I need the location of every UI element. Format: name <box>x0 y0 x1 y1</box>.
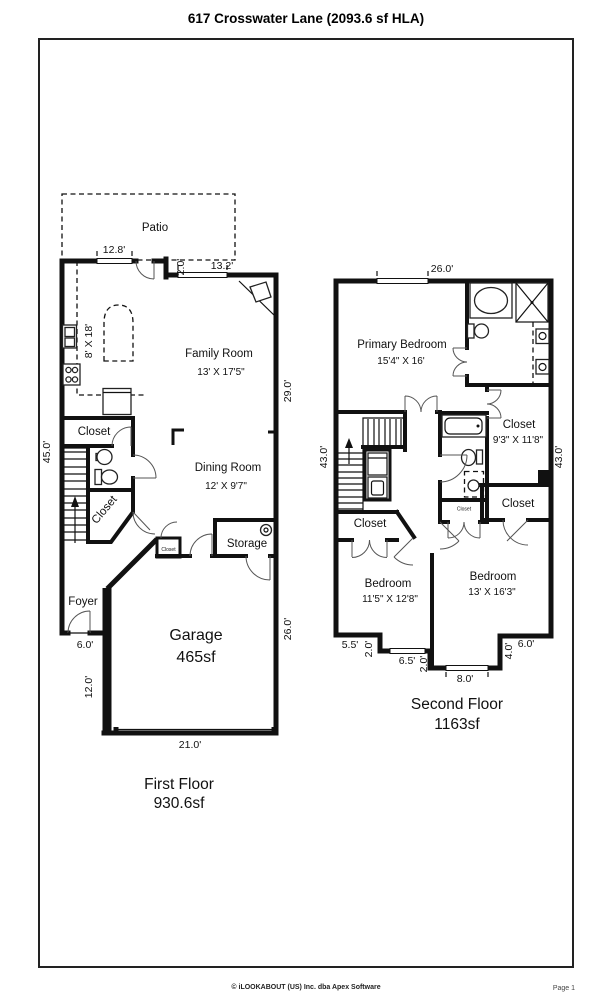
chimney-block <box>538 470 551 486</box>
powder-room-sink-icon <box>96 450 112 465</box>
dim-12-8: 12.8' <box>103 244 125 256</box>
first-floor-plan: Patio 12.8' 2.0' 13.2' 8' X 18' Family R… <box>41 194 294 812</box>
stove-icon <box>63 364 80 385</box>
primary-bath-tub-icon <box>470 283 512 318</box>
dim-6-0-ff: 6.0' <box>77 639 94 651</box>
bedroom-left-size: 11'5" X 12'8" <box>362 594 418 605</box>
bedroom-right-label: Bedroom <box>470 571 517 583</box>
garage-label: Garage <box>169 627 222 644</box>
powder-room-toilet-icon <box>95 470 118 485</box>
kitchen-island-outline <box>104 305 133 361</box>
dim-26-0-ff: 26.0' <box>282 618 294 640</box>
small-closet-door-swing <box>448 522 480 538</box>
double-vanity-icon <box>533 322 549 385</box>
left-closet-door-swing <box>352 540 387 558</box>
second-floor-name: Second Floor <box>411 696 503 713</box>
primary-bedroom-label: Primary Bedroom <box>357 339 446 351</box>
floor-plan-page: 617 Crosswater Lane (2093.6 sf HLA) <box>0 0 612 1008</box>
bedroom-left-window <box>390 649 425 654</box>
small-closet-label: Closet <box>457 507 472 513</box>
understairs-closet-label: Closet <box>90 493 121 526</box>
first-floor-name: First Floor <box>144 776 214 793</box>
garage-entry-door-swing <box>190 534 212 556</box>
garage-size: 465sf <box>176 649 216 666</box>
dining-room-label: Dining Room <box>195 462 261 474</box>
primary-bedroom-window <box>377 279 428 284</box>
family-room-label: Family Room <box>185 348 253 360</box>
front-door-swing <box>68 611 90 633</box>
hall-closet-door-swing <box>161 522 177 538</box>
floor-plan-canvas: Patio 12.8' 2.0' 13.2' 8' X 18' Family R… <box>0 0 612 1008</box>
dining-opening-bracket <box>173 430 184 445</box>
family-room-size: 13' X 17'5" <box>197 367 245 378</box>
dim-43-0-right: 43.0' <box>553 446 565 468</box>
dim-45-0: 45.0' <box>41 441 53 463</box>
hall-bath-toilet-icon <box>462 450 483 466</box>
upper-closet-label: Closet <box>78 426 111 438</box>
stairs-upper-flight <box>363 418 405 447</box>
dim-6-0-sf: 6.0' <box>518 638 535 650</box>
footer-page-number: Page 1 <box>553 985 575 992</box>
water-heater-icon <box>261 525 272 536</box>
first-floor-area: 930.6sf <box>154 795 206 812</box>
stairs-arrow-head-ff <box>71 496 79 507</box>
shower-icon <box>516 283 548 322</box>
primary-closet-door-swing <box>487 390 501 418</box>
right-closet-door-swing <box>503 520 528 545</box>
bedroom-right-window <box>446 666 488 671</box>
dim-43-0-left: 43.0' <box>318 446 330 468</box>
second-floor-area: 1163sf <box>434 716 480 733</box>
primary-bedroom-size: 15'4" X 16' <box>377 356 424 367</box>
patio-door-swing <box>136 261 154 279</box>
second-floor-plan: 26.0' Primary Bedroom 15'4" X 16' Closet… <box>318 263 565 733</box>
fireplace-icon <box>239 281 276 317</box>
storage-door-swing <box>246 556 270 580</box>
patio-label: Patio <box>142 222 168 234</box>
dim-8-0: 8.0' <box>457 673 474 685</box>
upper-closet-door-swing <box>112 427 131 446</box>
laundry-closet <box>365 450 390 500</box>
dim-13-2: 13.2' <box>211 260 233 272</box>
hall-bath-tub-icon <box>442 415 486 437</box>
understairs-closet-door-swing <box>133 512 155 534</box>
bedroom-left-label: Bedroom <box>365 578 412 590</box>
kitchen-sink-icon <box>63 325 77 348</box>
hall-closet-label: Closet <box>161 547 176 553</box>
dim-6-5: 6.5' <box>399 655 416 667</box>
left-closet-label: Closet <box>354 518 387 530</box>
island-size-label: 8' X 18' <box>83 324 95 358</box>
primary-closet-size: 9'3" X 11'8" <box>493 435 544 446</box>
dim-2-0-sf-b: 2.0' <box>418 656 430 673</box>
dim-21-0: 21.0' <box>179 739 201 751</box>
kitchen-window <box>97 259 132 264</box>
dim-4-0: 4.0' <box>503 643 515 660</box>
dim-12-0: 12.0' <box>83 676 95 698</box>
dim-5-5: 5.5' <box>342 639 359 651</box>
dim-2-0-ff: 2.0' <box>175 259 187 276</box>
primary-bath-door-swing <box>453 348 467 376</box>
storage-label: Storage <box>227 538 267 550</box>
dim-29-0: 29.0' <box>282 380 294 402</box>
stairs-arrow-head-sf <box>345 438 353 448</box>
refrigerator-icon <box>103 389 131 415</box>
dining-room-size: 12' X 9'7" <box>205 481 247 492</box>
powder-door-swing <box>133 455 156 478</box>
bedroom-left-door-swing <box>394 538 413 565</box>
right-closet-label: Closet <box>502 498 535 510</box>
primary-bedroom-door-swing <box>405 396 437 412</box>
dim-2-0-sf-a: 2.0' <box>363 641 375 658</box>
footer-copyright: © iLOOKABOUT (US) Inc. dba Apex Software <box>0 984 612 991</box>
bedroom-right-size: 13' X 16'3" <box>468 587 516 598</box>
primary-bath-toilet-icon <box>468 324 489 338</box>
dim-26-0-sf: 26.0' <box>431 263 453 275</box>
foyer-label: Foyer <box>68 596 98 608</box>
primary-closet-label: Closet <box>503 419 536 431</box>
stairs-lower-flight <box>337 447 363 512</box>
